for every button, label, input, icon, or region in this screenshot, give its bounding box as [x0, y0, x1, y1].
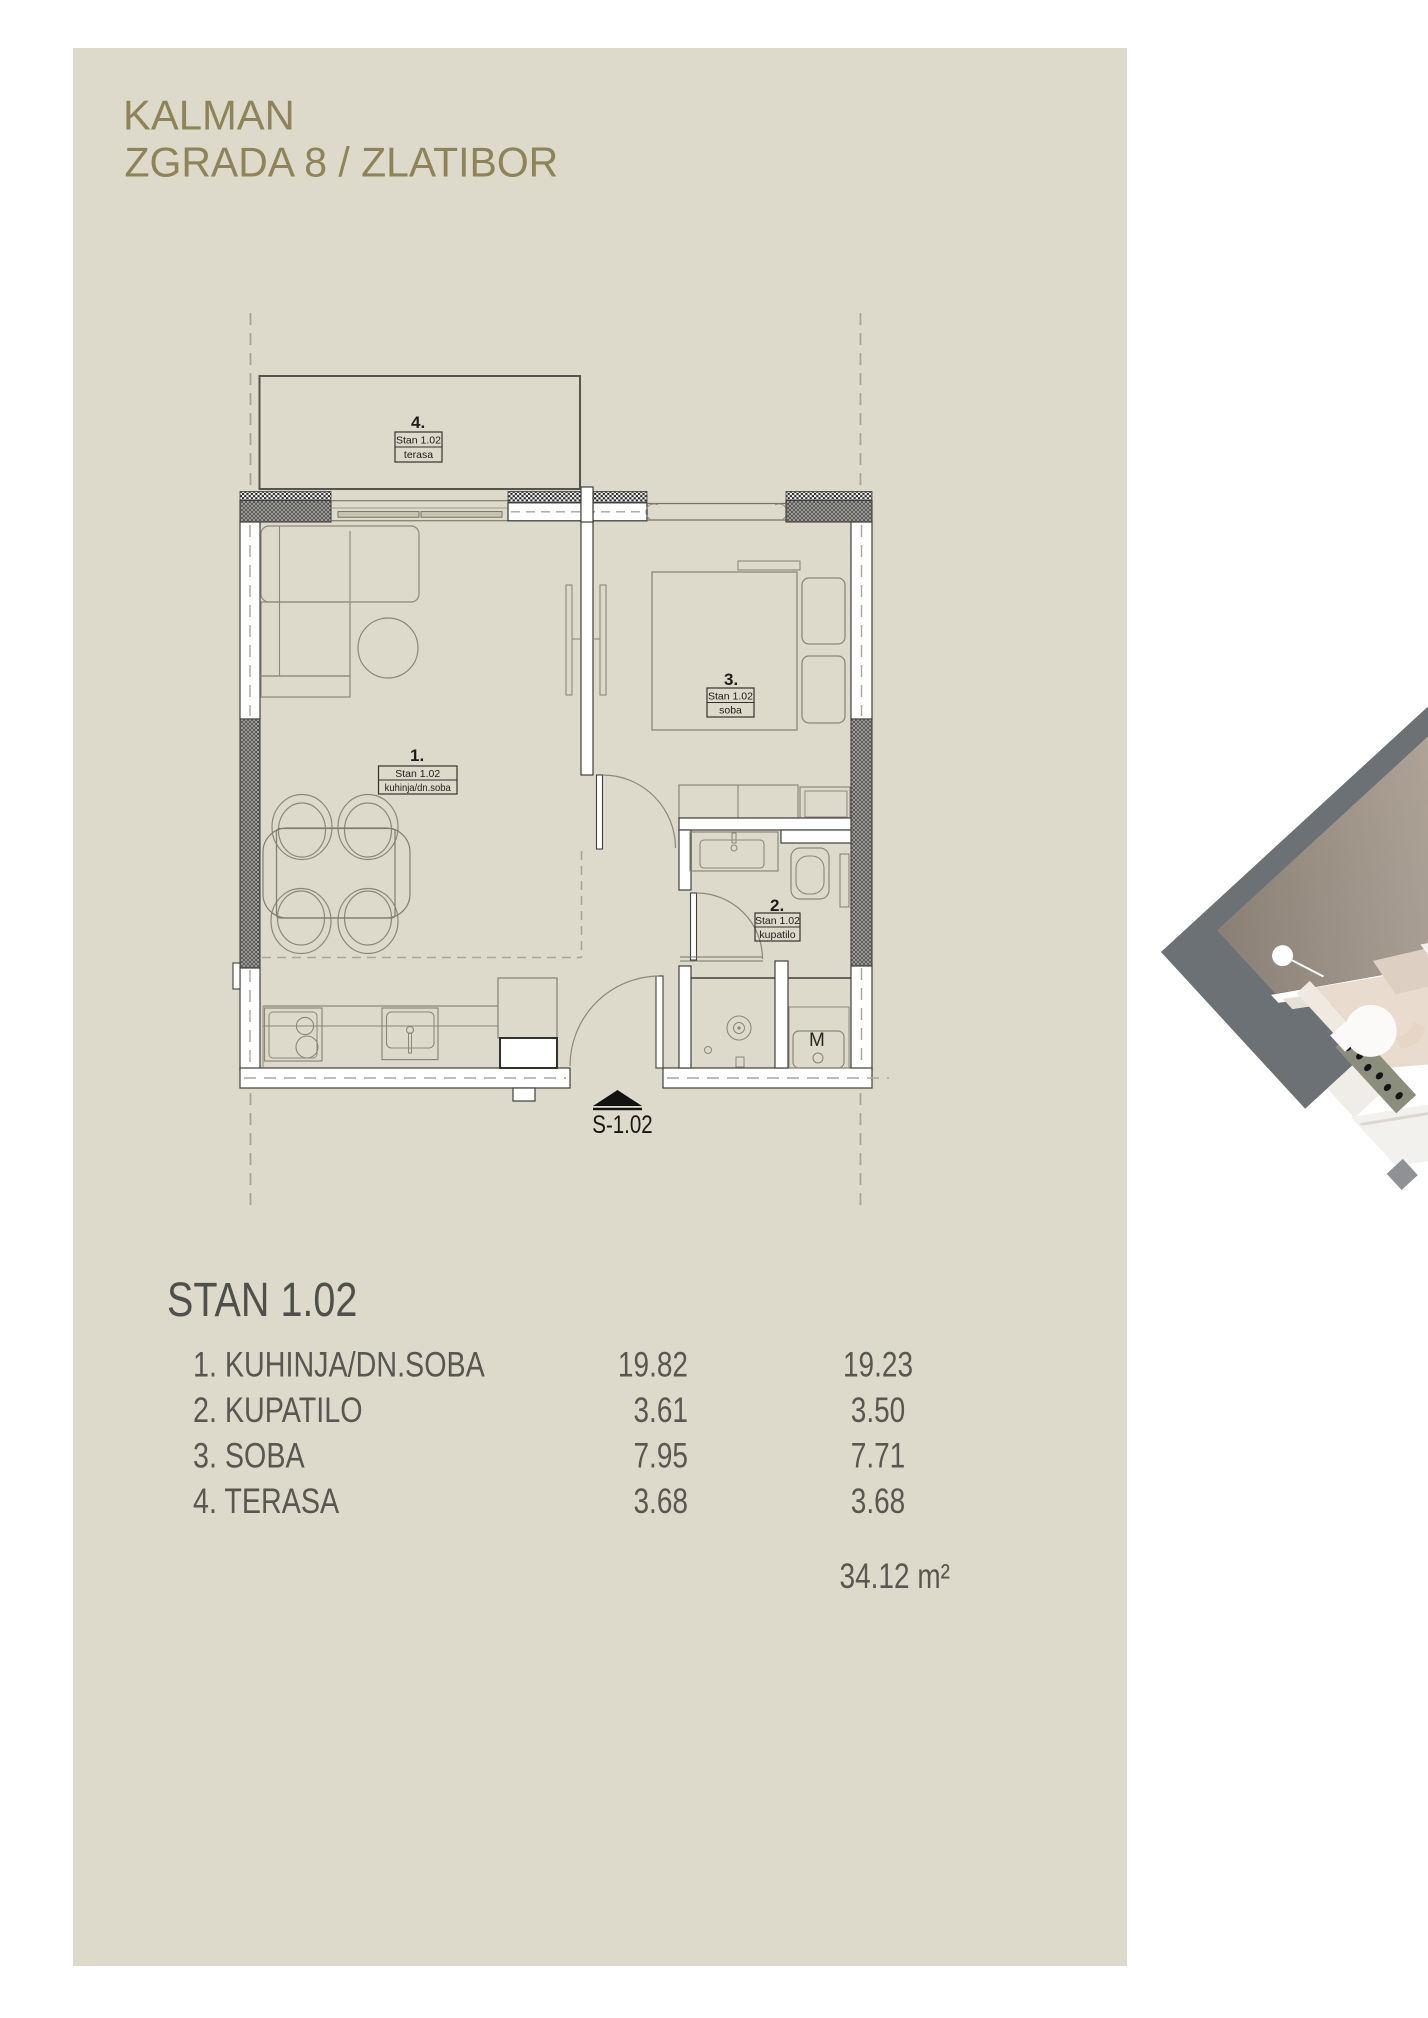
svg-text:2. KUPATILO: 2. KUPATILO — [193, 1390, 363, 1429]
svg-text:4.: 4. — [411, 413, 425, 432]
svg-text:soba: soba — [719, 705, 742, 717]
svg-text:kupatilo: kupatilo — [759, 929, 795, 941]
svg-text:19.23: 19.23 — [843, 1344, 913, 1384]
svg-text:Stan 1.02: Stan 1.02 — [395, 768, 440, 780]
svg-text:7.95: 7.95 — [634, 1435, 688, 1475]
svg-text:kuhinja/dn.soba: kuhinja/dn.soba — [385, 783, 451, 795]
svg-text:3.50: 3.50 — [851, 1390, 905, 1430]
svg-text:3.61: 3.61 — [634, 1390, 688, 1430]
svg-text:1.: 1. — [410, 746, 424, 765]
svg-text:M: M — [809, 1030, 825, 1051]
svg-text:7.71: 7.71 — [851, 1435, 905, 1475]
svg-text:S-1.02: S-1.02 — [592, 1110, 652, 1138]
svg-text:1. KUHINJA/DN.SOBA: 1. KUHINJA/DN.SOBA — [193, 1345, 485, 1384]
svg-text:4. TERASA: 4. TERASA — [193, 1481, 340, 1520]
svg-text:terasa: terasa — [404, 449, 433, 461]
svg-text:34.12 m²: 34.12 m² — [840, 1556, 950, 1596]
svg-text:STAN 1.02: STAN 1.02 — [167, 1273, 357, 1327]
svg-text:3.: 3. — [724, 670, 738, 689]
svg-text:3.68: 3.68 — [851, 1481, 905, 1521]
svg-text:19.82: 19.82 — [618, 1344, 688, 1384]
svg-text:KALMAN: KALMAN — [123, 91, 295, 138]
svg-text:ZGRADA 8 / ZLATIBOR: ZGRADA 8 / ZLATIBOR — [124, 138, 558, 186]
svg-text:3. SOBA: 3. SOBA — [193, 1436, 305, 1475]
svg-text:Stan 1.02: Stan 1.02 — [396, 435, 441, 447]
svg-text:Stan 1.02: Stan 1.02 — [708, 691, 753, 703]
svg-text:2.: 2. — [770, 896, 784, 915]
svg-text:3.68: 3.68 — [634, 1481, 688, 1521]
svg-text:Stan 1.02: Stan 1.02 — [755, 915, 800, 927]
